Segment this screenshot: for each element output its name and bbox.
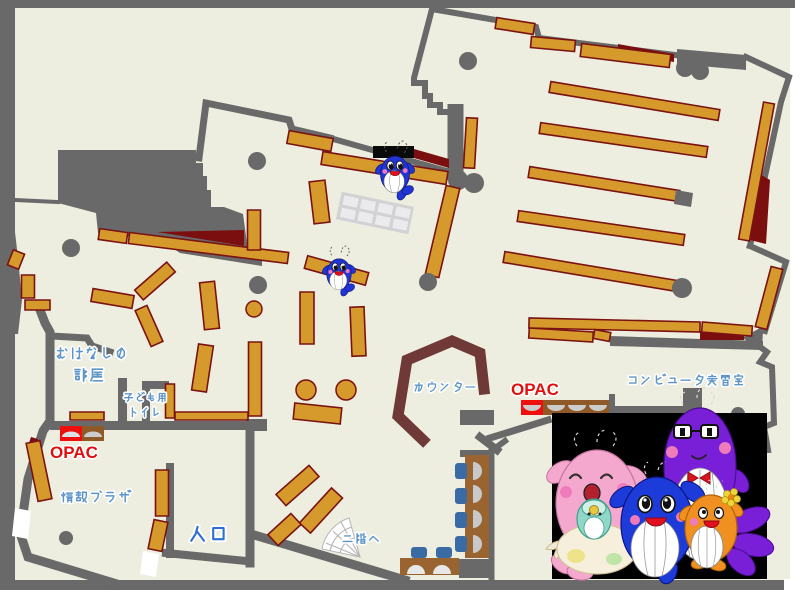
svg-text:OPAC: OPAC	[511, 380, 559, 399]
svg-text:OPAC: OPAC	[50, 443, 98, 462]
